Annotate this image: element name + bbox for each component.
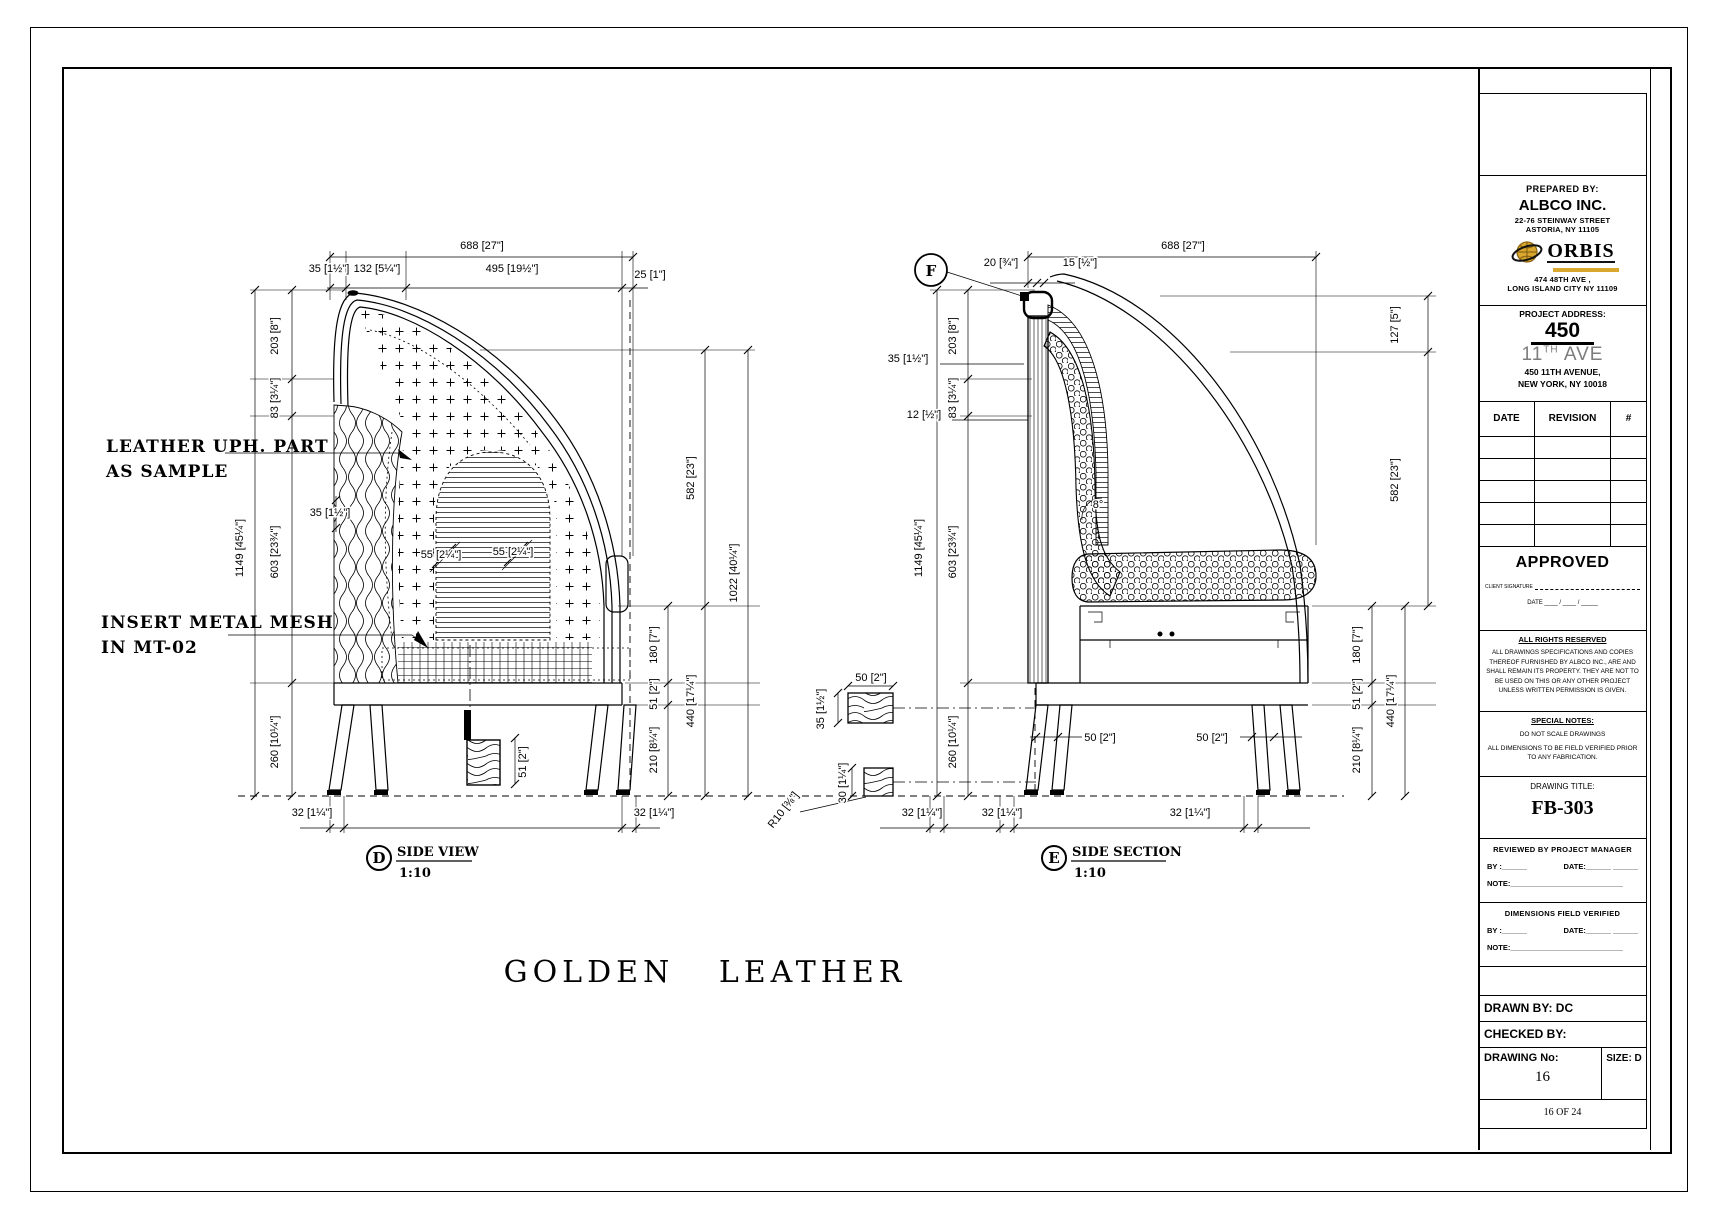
side-view-dim-label: 582 [23"]	[685, 456, 697, 500]
view-marker-d: D SIDE VIEW 1:10	[367, 845, 479, 881]
revision-empty-cell	[1535, 437, 1611, 459]
wood-back-panel	[334, 405, 402, 683]
section-cut-mark	[1020, 292, 1029, 301]
side-view-dim-label: 25 [1"]	[634, 269, 665, 281]
verified-by-line: BY :______	[1487, 926, 1527, 935]
drawn-by-row: DRAWN BY: DC	[1479, 996, 1646, 1022]
back-post-section	[1028, 316, 1048, 683]
revision-empty-cell	[1611, 481, 1646, 503]
special-note-2: ALL DIMENSIONS TO BE FIELD VERIFIED PRIO…	[1479, 744, 1646, 762]
back-apex-cap	[348, 290, 359, 296]
side-view-dim-label: 1022 [40¼"]	[728, 544, 740, 603]
drawing-main-title: GOLDEN LEATHER	[480, 955, 930, 990]
rail-section-block-lower	[864, 768, 893, 796]
drawing-title-value: FB-303	[1479, 796, 1646, 821]
side-view-dim-label: 55 [2¼"]	[493, 546, 534, 558]
side-view-dim-label: 35 [1½"]	[310, 507, 351, 519]
side-section-dim-label: 32 [1¼"]	[1170, 807, 1211, 819]
blank-section	[1479, 967, 1646, 996]
orbis-gold-bar	[1553, 268, 1619, 272]
side-view-dim-label: 32 [1¼"]	[634, 807, 675, 819]
special-note-1: DO NOT SCALE DRAWINGS	[1479, 731, 1646, 739]
view-letter-d: D	[372, 849, 385, 867]
side-section-dim-label: 260 [10¼"]	[947, 716, 959, 769]
side-view-dim-label: 1149 [45¼"]	[234, 519, 246, 577]
side-section-dim-label: 32 [1¼"]	[902, 807, 943, 819]
project-address-section: PROJECT ADDRESS: 450 11TH AVE 450 11TH A…	[1479, 306, 1646, 402]
side-section-dim-label: 83 [3¼"]	[947, 378, 959, 419]
side-view-dim-label: 55 [2¼"]	[421, 549, 462, 561]
side-section-dim-label: 180 [7"]	[1351, 626, 1363, 664]
project-full-address-2: NEW YORK, NY 10018	[1479, 379, 1646, 390]
page-count: 16 OF 24	[1479, 1100, 1646, 1127]
side-view-dim-label: 495 [19½"]	[486, 263, 539, 275]
revision-empty-cell	[1479, 481, 1535, 503]
drawing-title-label: DRAWING TITLE:	[1479, 782, 1646, 792]
approved-label: APPROVED	[1479, 553, 1646, 573]
side-section-dim-label: 127 [5"]	[1389, 306, 1401, 344]
dims-verified-label: DIMENSIONS FIELD VERIFIED	[1479, 909, 1646, 918]
side-section-dim-label: 50 [2"]	[1084, 732, 1115, 744]
orbis-address-2: LONG ISLAND CITY NY 11109	[1479, 284, 1646, 293]
approved-section: APPROVED CLIENT SIGNATURE DATE ____ / __…	[1479, 547, 1646, 631]
side-section-dim-label: 32 [1¼"]	[982, 807, 1023, 819]
detail-marker-bar	[464, 710, 471, 740]
side-view-dim-label: 32 [1¼"]	[292, 807, 333, 819]
annotation-leather-2: AS SAMPLE	[105, 462, 228, 482]
revision-empty-cell	[1535, 525, 1611, 546]
project-full-address-1: 450 11TH AVENUE,	[1479, 367, 1646, 378]
armrest-front-cap	[606, 556, 628, 612]
side-view-dim-label: 35 [1½"]	[309, 263, 350, 275]
side-section-dim-label: 582 [23"]	[1389, 458, 1401, 502]
company-address-2: ASTORIA, NY 11105	[1479, 225, 1646, 234]
annotation-mesh: INSERT METAL MESH	[101, 613, 334, 633]
view-scale-d: 1:10	[399, 866, 431, 881]
special-notes-section: SPECIAL NOTES: DO NOT SCALE DRAWINGS ALL…	[1479, 712, 1646, 777]
title-block-edge-line	[1650, 67, 1651, 1150]
verified-note-line: NOTE:___________________________	[1479, 943, 1646, 952]
project-street: 11TH AVE	[1479, 345, 1646, 365]
prepared-by-label: PREPARED BY:	[1479, 184, 1646, 195]
side-section-dim-label: 50 [2"]	[1196, 732, 1227, 744]
revision-header-date: DATE	[1479, 402, 1535, 437]
drawing-title-section: DRAWING TITLE: FB-303	[1479, 777, 1646, 839]
orbis-wordmark: ORBIS	[1547, 242, 1614, 263]
annotation-mesh-2: IN MT-02	[101, 638, 198, 658]
side-view-dim-label: 51 [2"]	[648, 678, 660, 709]
rights-body: ALL DRAWINGS SPECIFICATIONS AND COPIES T…	[1479, 644, 1646, 695]
side-section-dim-label: 30 [1¼"]	[837, 763, 849, 804]
side-view-dim-label: 603 [23¾"]	[269, 526, 281, 579]
checked-by-row: CHECKED BY:	[1479, 1022, 1646, 1048]
revision-empty-cell	[1611, 459, 1646, 481]
verified-date-line: DATE:______ ______	[1564, 926, 1639, 935]
reviewed-date-line: DATE:______ ______	[1564, 862, 1639, 871]
view-name-d: SIDE VIEW	[397, 845, 479, 860]
client-signature-label: CLIENT SIGNATURE	[1485, 584, 1533, 590]
reviewed-section: REVIEWED BY PROJECT MANAGER BY :______ D…	[1479, 839, 1646, 903]
globe-icon	[1510, 239, 1544, 267]
size-label: SIZE: D	[1602, 1048, 1646, 1099]
side-section-dim-label: 203 [8"]	[947, 317, 959, 355]
side-view-drawing	[327, 290, 636, 795]
revision-empty-cell	[1535, 459, 1611, 481]
view-name-e: SIDE SECTION	[1072, 845, 1182, 860]
company-name: ALBCO INC.	[1479, 197, 1646, 216]
revision-empty-cell	[1611, 437, 1646, 459]
side-view-dim-label: 210 [8¼"]	[648, 727, 660, 774]
detail-letter-f: F	[926, 262, 937, 280]
orbis-address-1: 474 48TH AVE ,	[1479, 275, 1646, 284]
detail-marker-f: F	[915, 254, 947, 286]
side-section-dim-label: 51 [2"]	[1351, 678, 1363, 709]
revision-header-revision: REVISION	[1535, 402, 1611, 437]
leg-section-detail	[467, 740, 500, 785]
blueprint-page: LEATHER UPH. PART AS SAMPLE INSERT METAL…	[0, 0, 1717, 1218]
orbis-logo: ORBIS	[1479, 239, 1646, 267]
annotation-leather: LEATHER UPH. PART	[106, 437, 329, 457]
side-section-dim-label: 440 [17¼"]	[1385, 675, 1397, 728]
revision-header-num: #	[1611, 402, 1646, 437]
view-letter-e: E	[1048, 849, 1059, 867]
side-section-dim-label: 50 [2"]	[855, 672, 886, 684]
title-block: PREPARED BY: ALBCO INC. 22-76 STEINWAY S…	[1478, 93, 1647, 1129]
side-view-dim-label: 132 [5¼"]	[354, 263, 401, 275]
side-view-dim-label: 180 [7"]	[648, 626, 660, 664]
revision-empty-cell	[1479, 437, 1535, 459]
rights-title: ALL RIGHTS RESERVED	[1479, 635, 1646, 644]
side-section-dim-label: 12 [½"]	[907, 409, 941, 421]
side-section-dim-label: 8°	[1093, 499, 1104, 511]
reviewed-note-line: NOTE:___________________________	[1479, 879, 1646, 888]
approved-date-line: DATE ____ / ____ / _____	[1479, 600, 1646, 608]
reviewed-by-line: BY :______	[1487, 862, 1527, 871]
side-section-dim-label: 20 [¾"]	[984, 257, 1018, 269]
prepared-by-section: PREPARED BY: ALBCO INC. 22-76 STEINWAY S…	[1479, 176, 1646, 306]
side-section-dim-label: 35 [1½"]	[888, 353, 929, 365]
reviewed-label: REVIEWED BY PROJECT MANAGER	[1479, 845, 1646, 854]
project-number: 450	[1531, 320, 1594, 345]
revision-empty-cell	[1479, 459, 1535, 481]
client-signature-line	[1535, 581, 1640, 590]
seat-cushion-section	[1072, 550, 1316, 602]
section-legs	[1026, 705, 1300, 790]
rail-section-block-upper	[848, 693, 893, 723]
revision-table: DATEREVISION#	[1479, 402, 1646, 547]
rights-section: ALL RIGHTS RESERVED ALL DRAWINGS SPECIFI…	[1479, 631, 1646, 712]
side-view-dim-label: 688 [27"]	[460, 240, 504, 252]
side-section-dim-label: 35 [1½"]	[815, 689, 827, 730]
drawing-no-label: DRAWING No:	[1484, 1052, 1601, 1066]
view-scale-e: 1:10	[1074, 866, 1106, 881]
side-section-dim-label: 688 [27"]	[1161, 240, 1205, 252]
side-view-dim-label: 51 [2"]	[517, 746, 529, 777]
revision-empty-cell	[1479, 525, 1535, 546]
title-block-logo-space	[1479, 94, 1646, 176]
side-view-dim-label: 260 [10¼"]	[269, 716, 281, 769]
side-section-dim-label: 603 [23¾"]	[947, 526, 959, 579]
revision-empty-cell	[1535, 503, 1611, 525]
view-marker-e: E SIDE SECTION 1:10	[1042, 845, 1182, 881]
side-view-dim-label: 83 [3¼"]	[269, 378, 281, 419]
company-address-1: 22-76 STEINWAY STREET	[1479, 216, 1646, 225]
special-notes-title: SPECIAL NOTES:	[1479, 716, 1646, 725]
side-section-dim-label: 1149 [45¼"]	[913, 519, 925, 577]
revision-empty-cell	[1611, 525, 1646, 546]
revision-empty-cell	[1479, 503, 1535, 525]
drawing-no-value: 16	[1484, 1068, 1601, 1087]
side-view-dim-label: 440 [17¼"]	[685, 675, 697, 728]
side-section-dim-label: 15 [½"]	[1063, 257, 1097, 269]
drawing-number-row: DRAWING No: 16 SIZE: D	[1479, 1048, 1646, 1100]
revision-empty-cell	[1535, 481, 1611, 503]
side-section-dim-label: 210 [8¼"]	[1351, 727, 1363, 774]
revision-empty-cell	[1611, 503, 1646, 525]
dimensions-verified-section: DIMENSIONS FIELD VERIFIED BY :______ DAT…	[1479, 903, 1646, 967]
side-view-dim-label: 203 [8"]	[269, 317, 281, 355]
